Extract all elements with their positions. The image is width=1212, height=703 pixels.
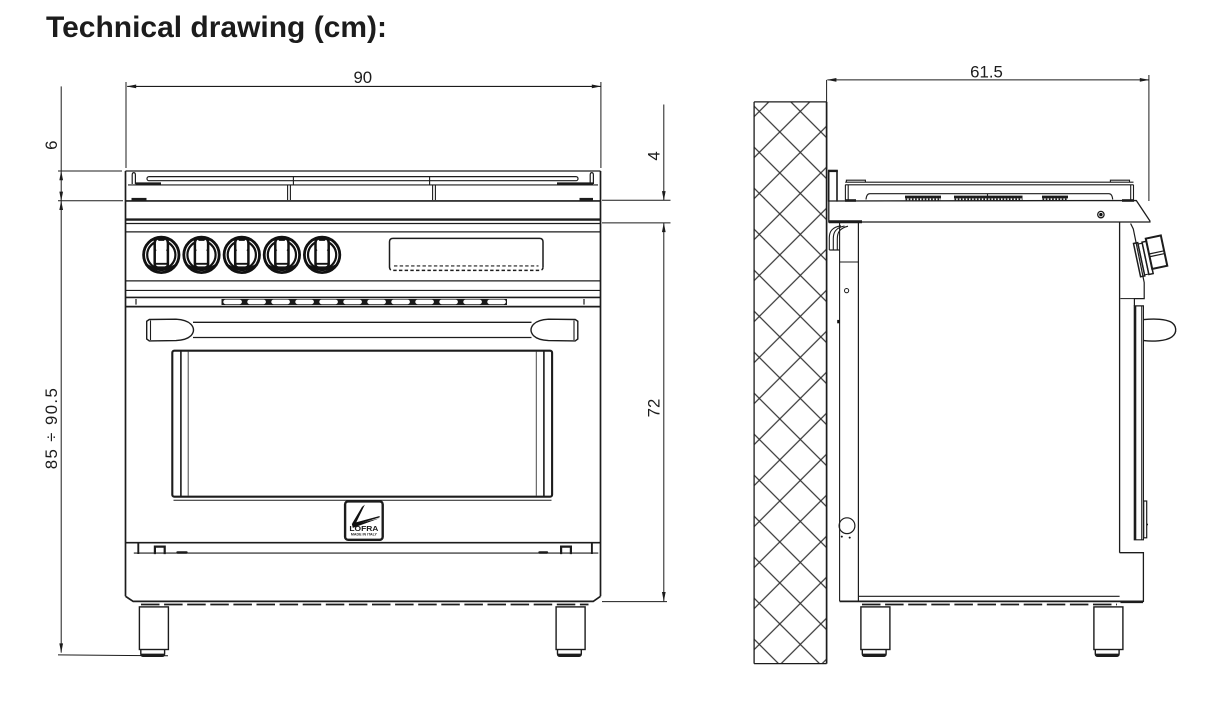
svg-text:90: 90: [353, 68, 372, 87]
svg-text:LOFRA: LOFRA: [349, 524, 379, 533]
svg-text:6: 6: [42, 141, 61, 150]
svg-text:Technical drawing (cm):: Technical drawing (cm):: [46, 11, 387, 44]
svg-text:61.5: 61.5: [970, 63, 1003, 82]
svg-text:72: 72: [644, 399, 663, 418]
svg-text:4: 4: [644, 151, 663, 160]
svg-text:85 ÷ 90.5: 85 ÷ 90.5: [42, 387, 61, 469]
svg-text:MADE IN ITALY: MADE IN ITALY: [351, 533, 378, 537]
